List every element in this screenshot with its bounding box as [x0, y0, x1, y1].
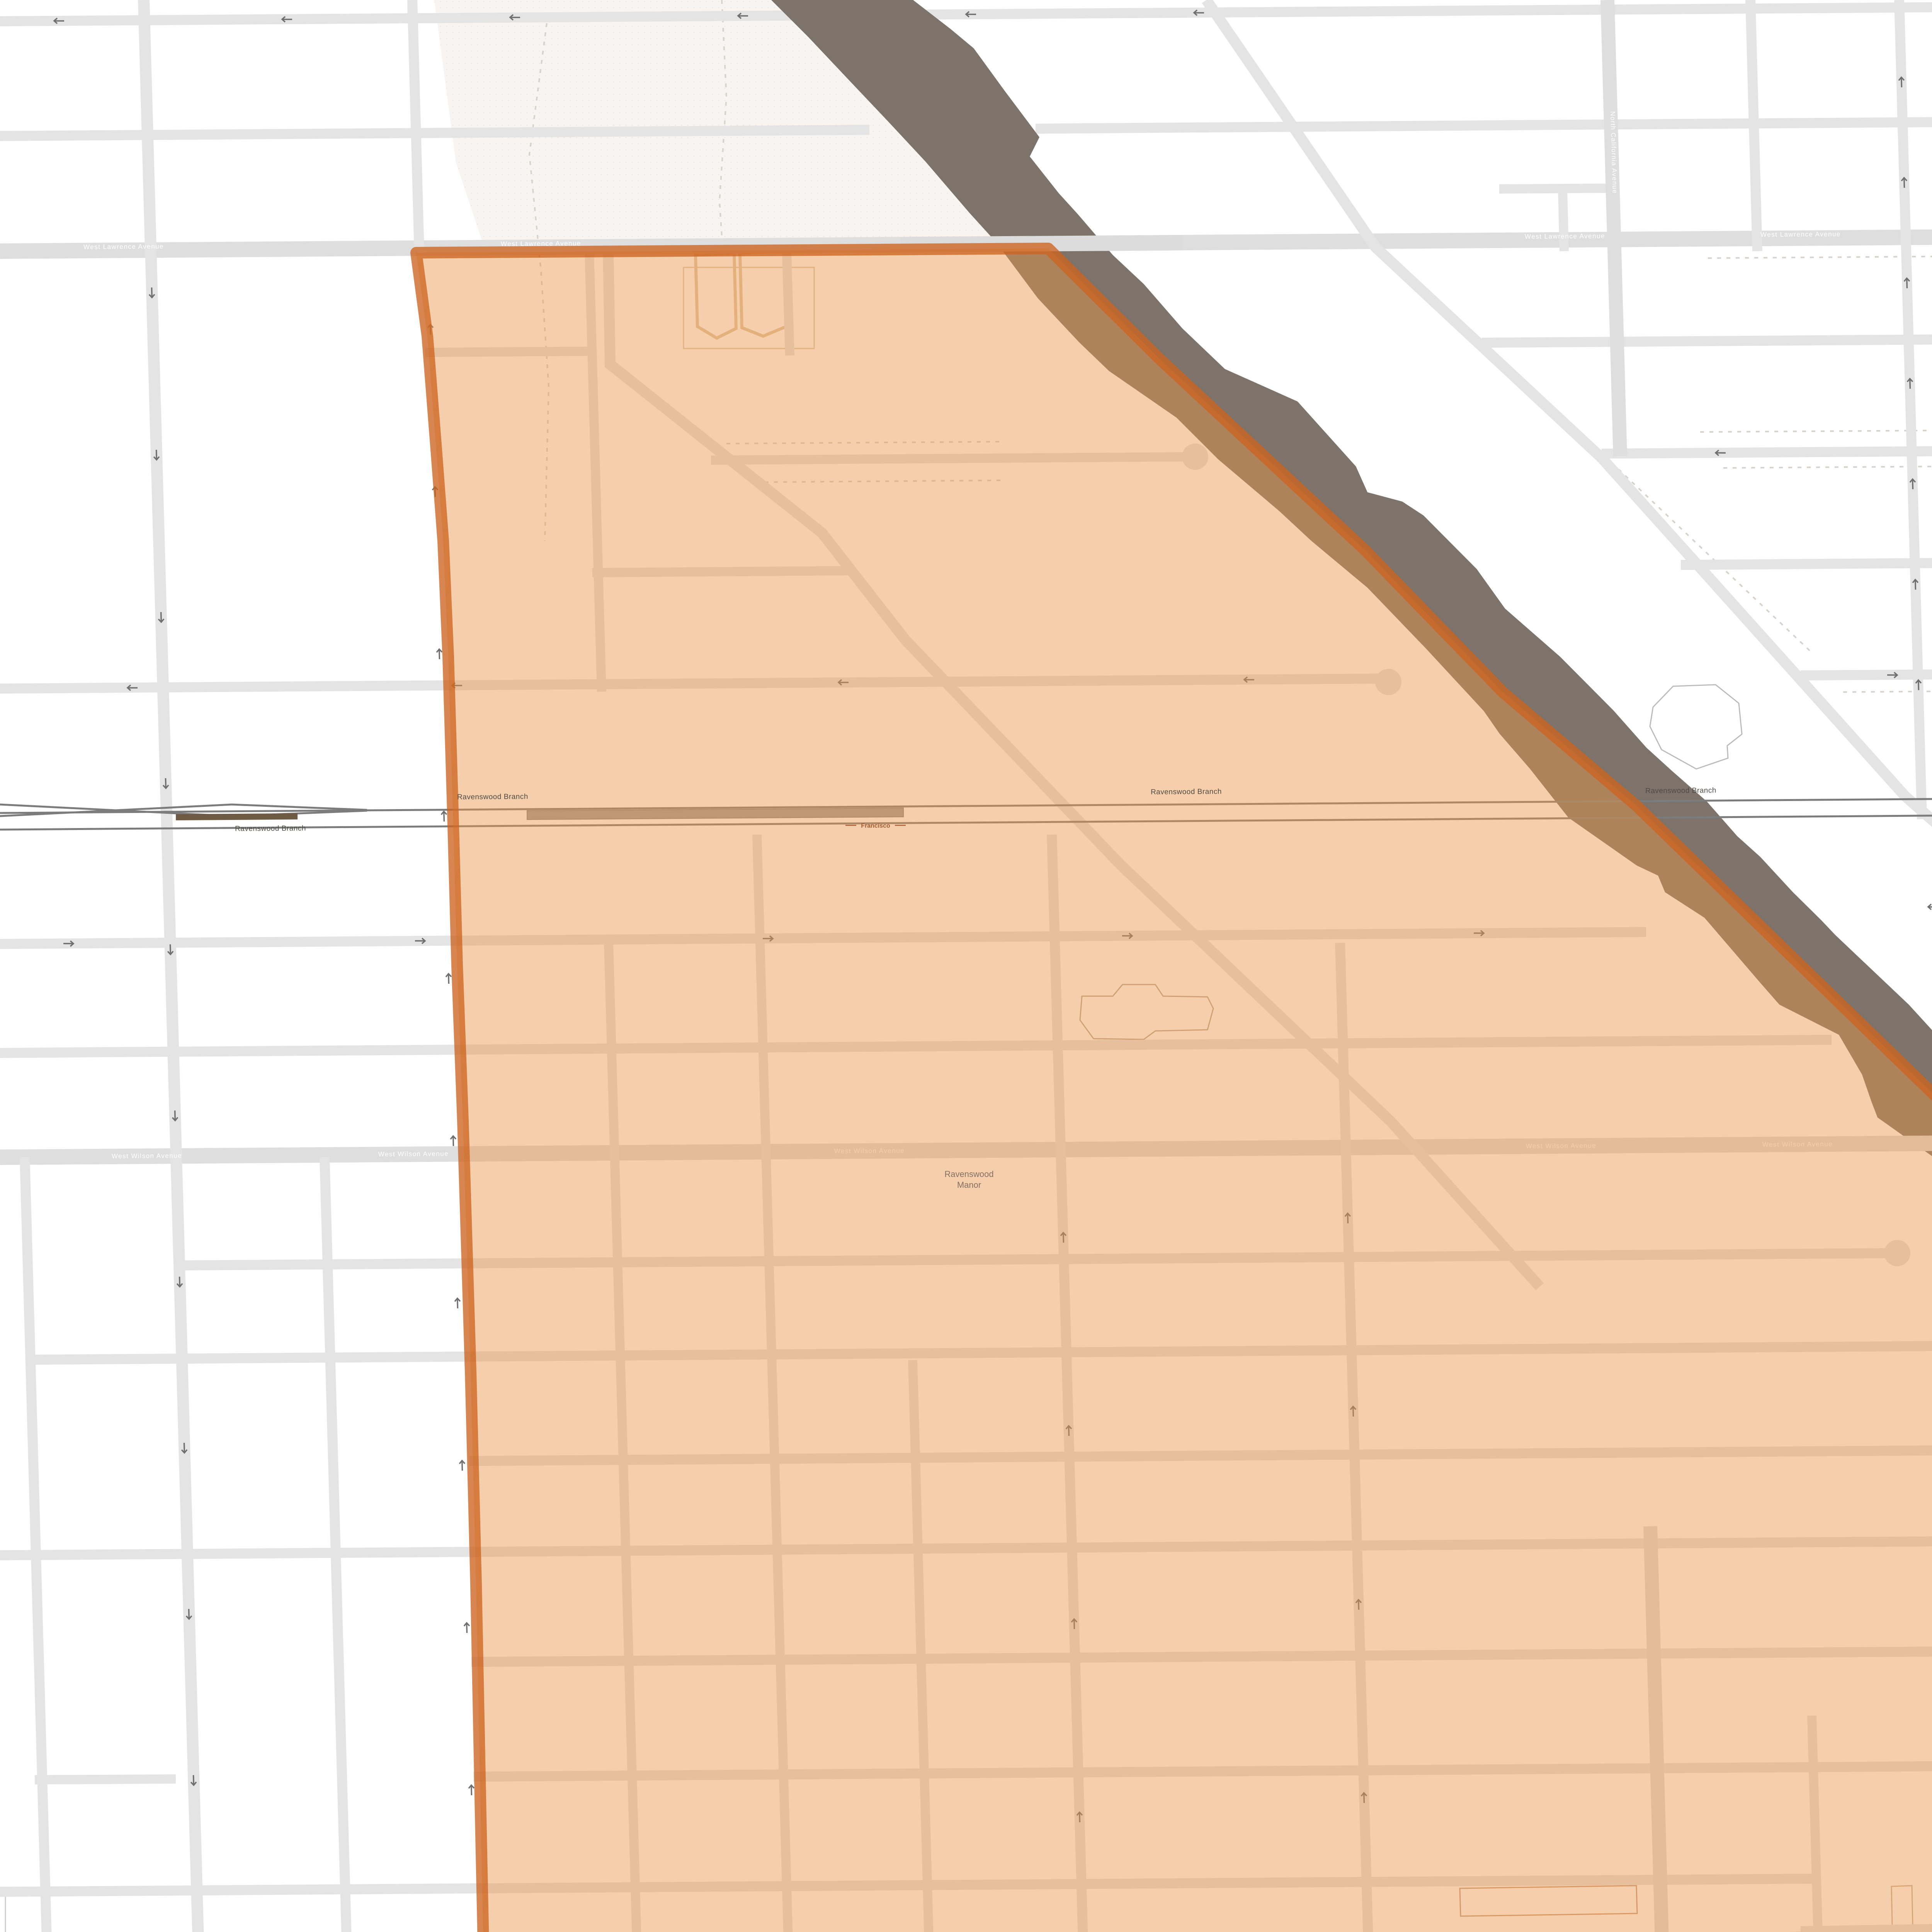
svg-text:Ravenswood: Ravenswood [944, 1169, 993, 1179]
svg-text:Francisco: Francisco [861, 823, 890, 829]
svg-text:West Wilson Avenue: West Wilson Avenue [112, 1152, 182, 1160]
svg-text:Ravenswood Branch: Ravenswood Branch [457, 793, 528, 801]
svg-text:West Wilson Avenue: West Wilson Avenue [378, 1150, 449, 1158]
svg-text:West Lawrence Avenue: West Lawrence Avenue [1760, 230, 1841, 238]
svg-text:Ravenswood Branch: Ravenswood Branch [1151, 787, 1222, 796]
svg-text:Manor: Manor [957, 1180, 981, 1190]
svg-text:West Lawrence Avenue: West Lawrence Avenue [83, 243, 164, 250]
svg-text:West Lawrence Avenue: West Lawrence Avenue [1525, 232, 1605, 240]
svg-text:Ravenswood Branch: Ravenswood Branch [1645, 786, 1716, 795]
svg-text:Ravenswood Branch: Ravenswood Branch [235, 824, 306, 833]
